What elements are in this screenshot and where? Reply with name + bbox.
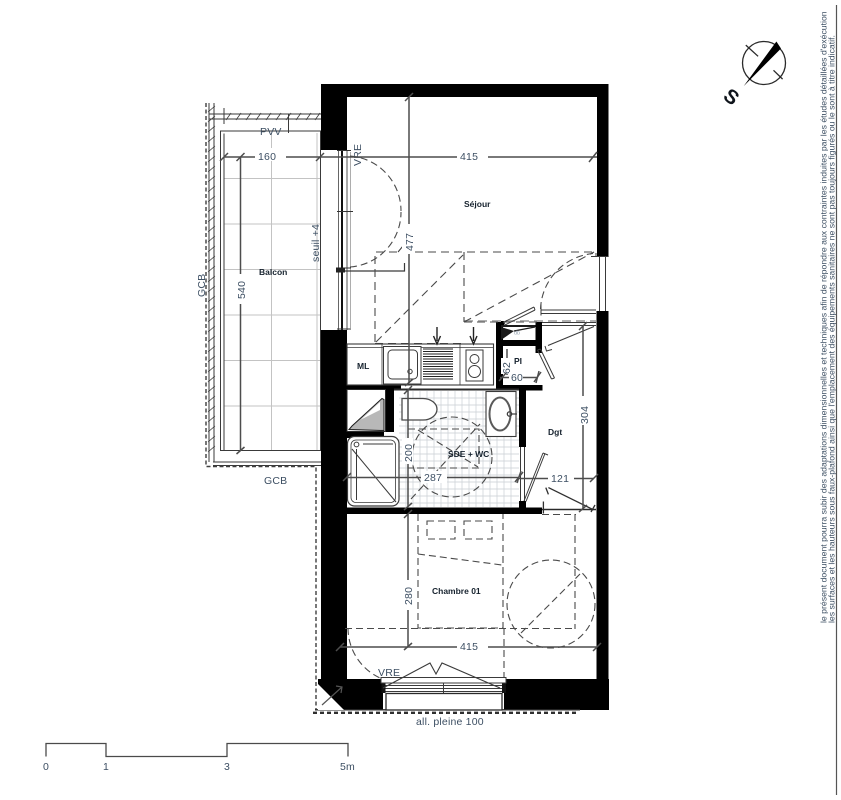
svg-text:60: 60 [511,372,523,384]
svg-text:200: 200 [403,444,415,462]
svg-text:280: 280 [403,587,415,605]
svg-text:0: 0 [43,761,49,773]
svg-text:SDE + WC: SDE + WC [448,449,489,459]
svg-text:db: db [514,331,520,337]
svg-text:415: 415 [460,151,478,163]
svg-text:Dgt: Dgt [548,427,562,437]
svg-text:160: 160 [258,151,276,163]
svg-text:Chambre 01: Chambre 01 [432,586,481,596]
svg-text:477: 477 [404,233,416,251]
svg-text:GCB: GCB [196,274,208,297]
svg-text:Balcon: Balcon [259,267,287,277]
svg-text:540: 540 [236,281,248,299]
svg-text:all. pleine 100: all. pleine 100 [416,716,484,728]
svg-text:121: 121 [551,473,569,485]
svg-text:VRE: VRE [352,144,364,166]
svg-text:3: 3 [224,761,230,773]
svg-text:VRE: VRE [378,667,400,679]
svg-text:Séjour: Séjour [464,199,491,209]
svg-text:415: 415 [460,641,478,653]
svg-text:287: 287 [424,472,442,484]
svg-text:GCB: GCB [264,475,287,487]
svg-text:seuil +4: seuil +4 [310,224,322,262]
svg-text:PI: PI [514,356,522,366]
svg-text:5m: 5m [340,761,355,773]
svg-text:ML: ML [357,361,369,371]
svg-text:1: 1 [103,761,109,773]
svg-text:304: 304 [579,406,591,424]
svg-text:les surfaces et les hauteurs s: les surfaces et les hauteurs sous faux-p… [827,35,837,623]
svg-text:PVV: PVV [260,126,282,138]
